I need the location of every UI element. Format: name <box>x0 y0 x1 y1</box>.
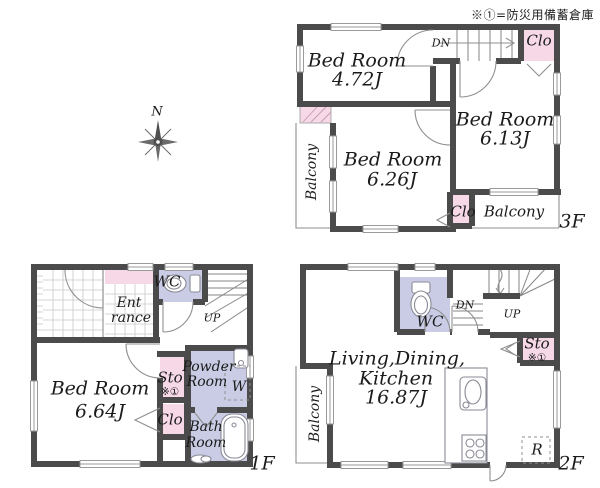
closet-bottom-label-3f: Clo <box>450 205 475 220</box>
stairs-up-label-1f: UP <box>204 313 221 324</box>
balcony-rear-label-3f: Balcony <box>484 205 544 220</box>
compass-icon <box>133 117 183 167</box>
stairs-up-label-2f: UP <box>504 309 521 320</box>
bathroom-label-line1: Bath <box>189 420 222 434</box>
floor-plan-image: ※①=防災用備蓄倉庫 N <box>0 0 600 488</box>
floor-plan-1f <box>25 256 277 486</box>
entrance-label-line1: Ent <box>117 296 142 310</box>
kitchen-counter-2f <box>445 368 487 463</box>
storage-note-1f: ※① <box>161 387 179 398</box>
refrigerator-label-2f: R <box>531 443 542 458</box>
closet-top-label-3f: Clo <box>526 34 551 49</box>
floor-label-1f: 1F <box>249 455 274 474</box>
bedroom2-name-3f: Bed Room <box>344 151 443 170</box>
stairs-down-label-2f: DN <box>456 300 474 311</box>
wc-label-1f: WC <box>154 275 181 290</box>
balcony-label-2f: Balcony <box>308 386 322 442</box>
stairs-down-label-3f: DN <box>432 38 450 49</box>
powder-room-label-line2: Room <box>187 375 228 389</box>
bathroom-label-line2: Room <box>186 436 227 450</box>
floor-label-2f: 2F <box>558 455 583 474</box>
powder-room-label-line1: Powder <box>182 360 235 374</box>
sink-icon-1f <box>234 349 248 368</box>
bedroom-name-1f: Bed Room <box>51 380 150 399</box>
bedroom3-area-3f: 6.13J <box>480 130 530 149</box>
wc-label-2f: WC <box>417 315 444 330</box>
closet-label-1f: Clo <box>157 413 182 428</box>
ldk-label-line1: Living,Dining, <box>329 350 465 369</box>
storage-label-2f: Sto <box>524 337 549 352</box>
storage-note-2f: ※① <box>528 353 546 364</box>
washer-label-1f: W <box>232 380 246 394</box>
bedroom2-area-3f: 6.26J <box>367 171 417 190</box>
entrance-label-line2: rance <box>111 311 151 325</box>
floor-label-3f: 3F <box>559 213 584 232</box>
bedroom-area-1f: 6.64J <box>75 403 125 422</box>
ldk-area-label: 16.87J <box>365 389 427 408</box>
balcony-side-label-3f: Balcony <box>305 144 319 200</box>
storage-label-1f: Sto <box>157 371 182 386</box>
bedroom1-area-3f: 4.72J <box>332 71 382 90</box>
